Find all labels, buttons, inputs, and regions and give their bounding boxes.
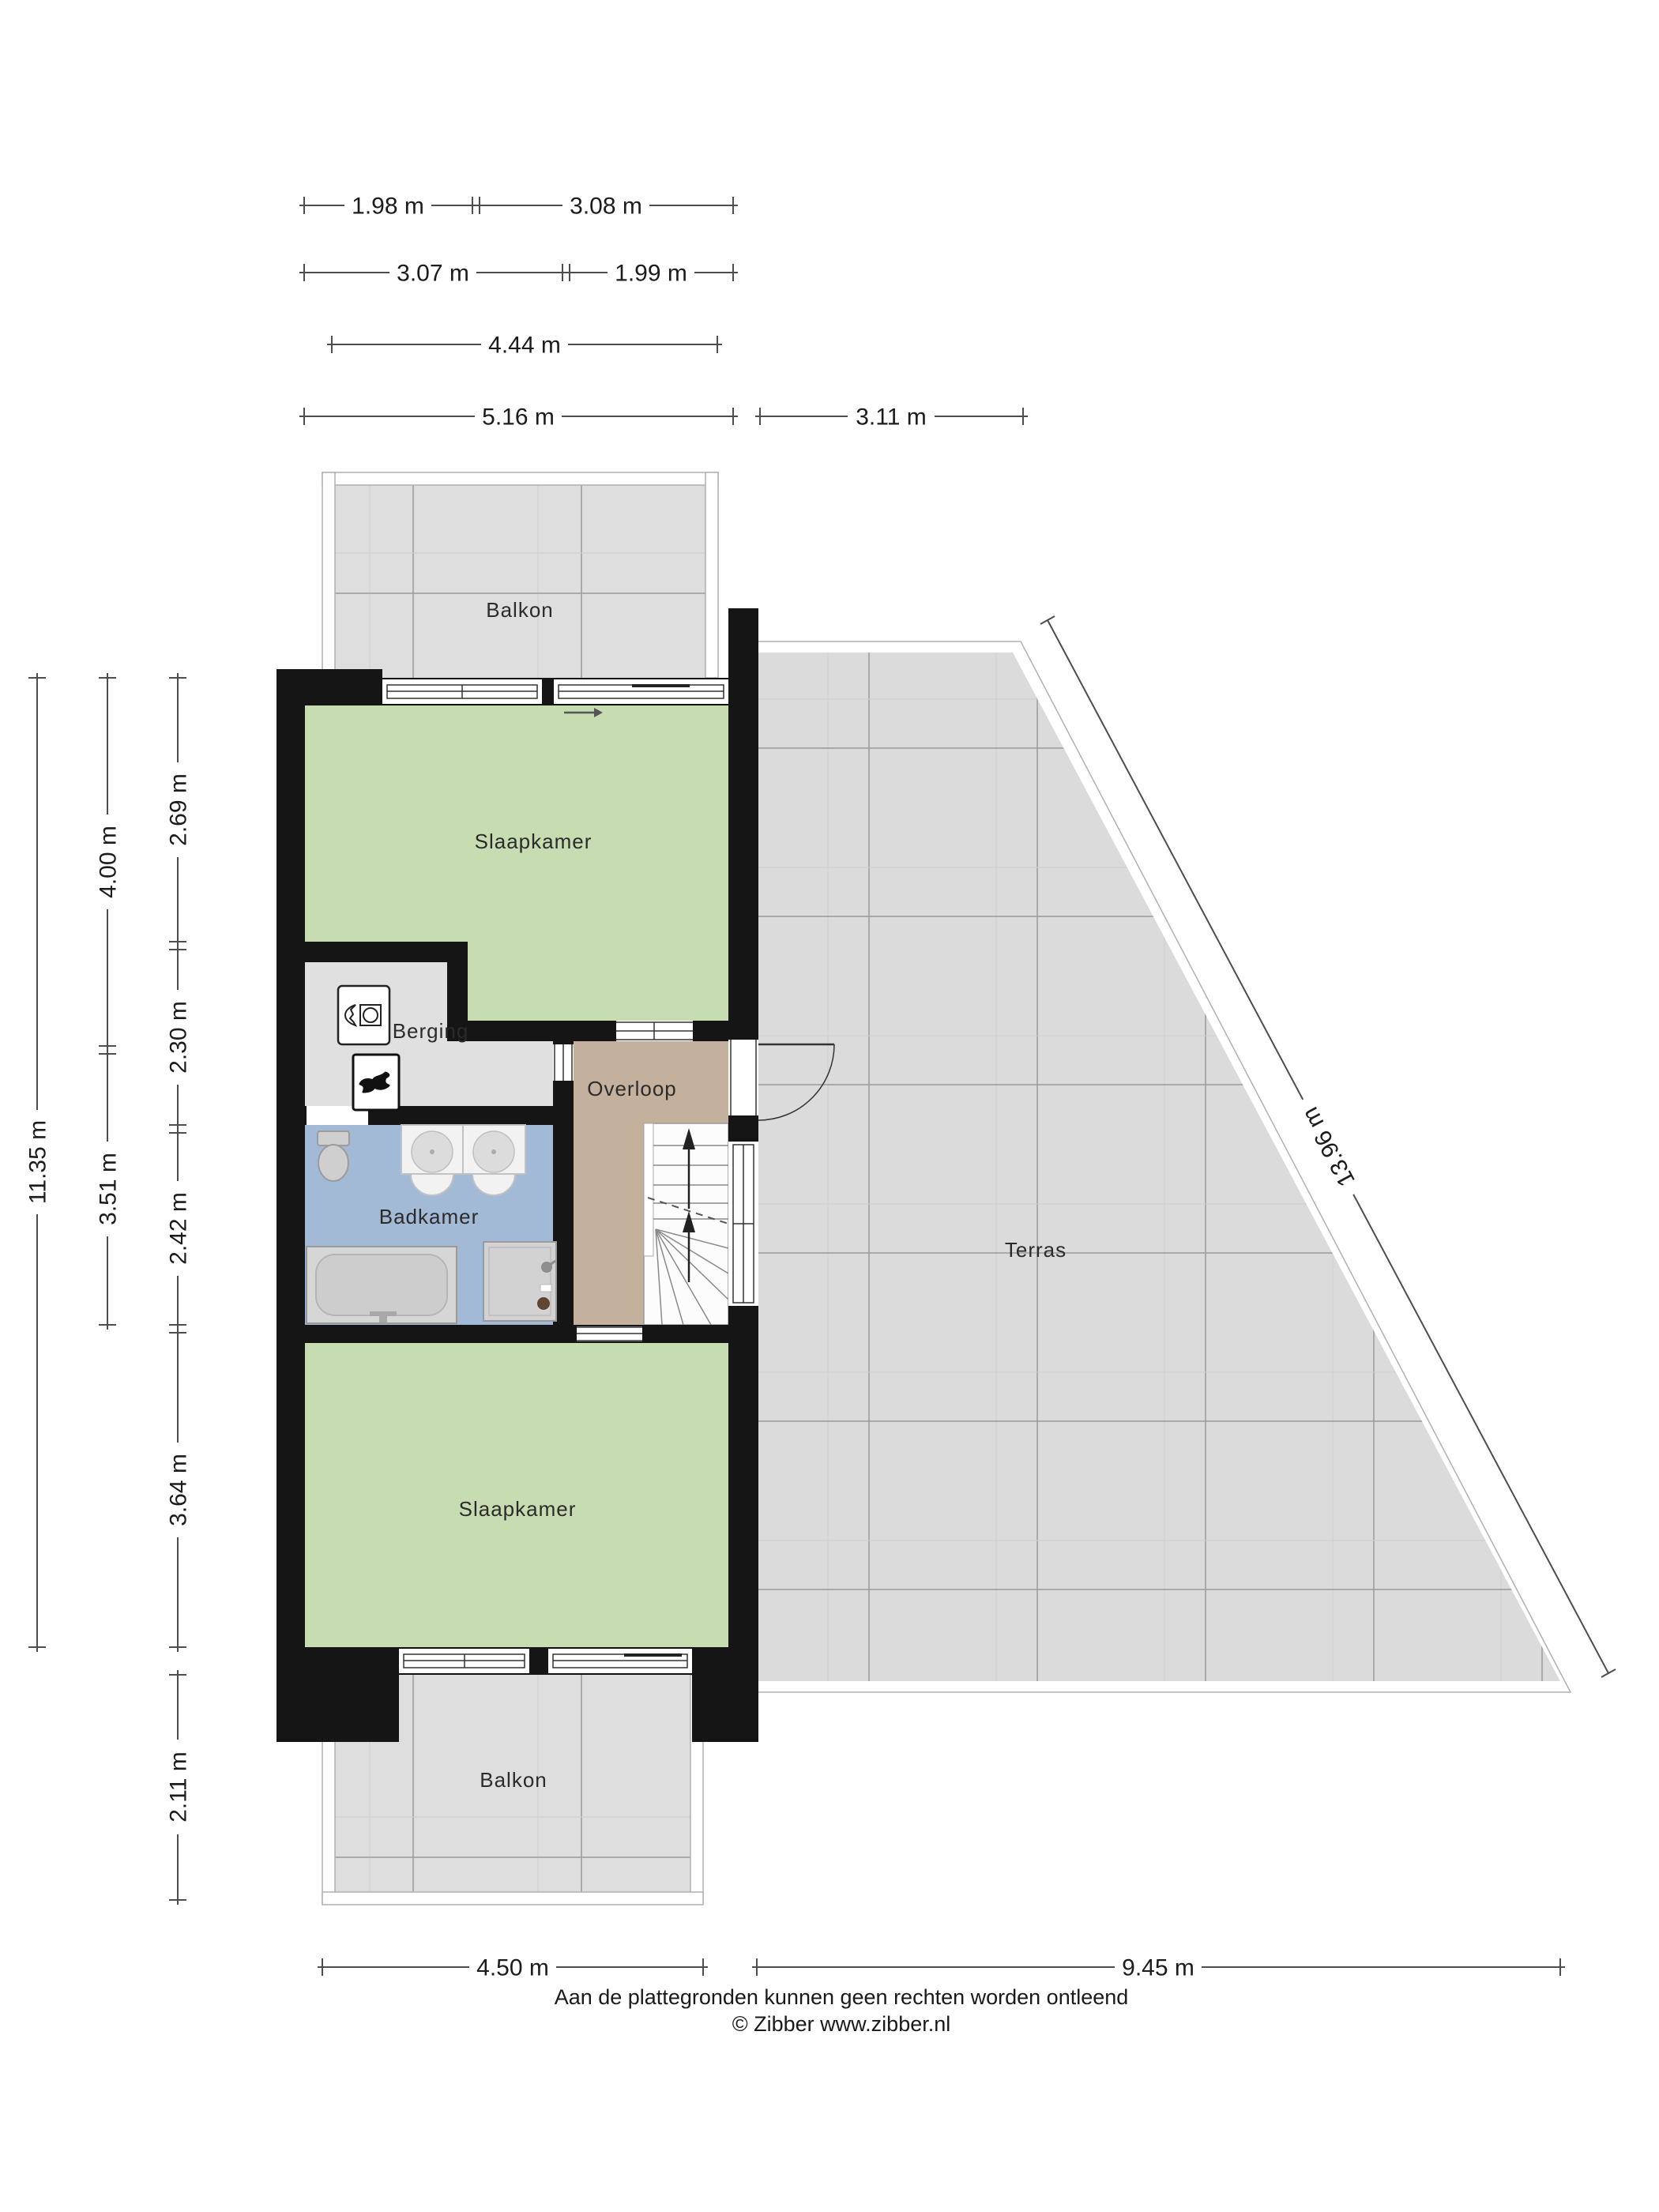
outer-wall-right-upper: [728, 608, 758, 1040]
dim-left-2-42: 2.42 m: [164, 1128, 192, 1330]
dim-top-3: 4.44 m: [327, 331, 722, 359]
svg-text:1.98 m: 1.98 m: [352, 194, 424, 220]
svg-text:4.44 m: 4.44 m: [488, 333, 561, 359]
svg-text:3.51 m: 3.51 m: [96, 1153, 122, 1225]
dim-top-2b: 1.99 m: [565, 259, 738, 287]
dim-top-1a: 1.98 m: [299, 192, 477, 220]
dimensions-bottom: 4.50 m 9.45 m: [318, 1954, 1565, 1981]
window-bedroom-top-1: [382, 678, 542, 705]
svg-text:4.00 m: 4.00 m: [96, 826, 122, 898]
svg-text:3.64 m: 3.64 m: [166, 1454, 192, 1526]
floorplan-canvas: Balkon Slaapkamer Berging Overloop Badka…: [0, 0, 1659, 2212]
dim-top-1b: 3.08 m: [475, 192, 738, 220]
dim-top-4b: 3.11 m: [755, 403, 1028, 431]
boiler-icon: [353, 1055, 399, 1110]
svg-text:2.30 m: 2.30 m: [166, 1001, 192, 1074]
wall-bathroom-bedroom: [305, 1325, 730, 1343]
staircase-stringer: [644, 1123, 653, 1256]
svg-text:3.11 m: 3.11 m: [856, 404, 927, 431]
outer-wall-top-left-stub: [276, 669, 382, 705]
svg-text:13.96 m: 13.96 m: [1297, 1103, 1360, 1191]
shower-icon: [483, 1242, 556, 1321]
outer-wall-top-pier: [542, 678, 554, 705]
outer-wall-bottom-pier: [529, 1647, 548, 1675]
outer-wall-left: [276, 669, 305, 1742]
window-landing-bedroom: [577, 1326, 642, 1341]
window-bedroom-bottom-1: [399, 1647, 529, 1675]
svg-text:3.07 m: 3.07 m: [397, 261, 469, 287]
dim-top-4a: 5.16 m: [299, 403, 738, 431]
dim-left-2-30: 2.30 m: [164, 945, 192, 1130]
dimensions-top: 1.98 m 3.08 m 3.07 m 1.99 m: [299, 192, 1028, 431]
room-label-balkon-top: Balkon: [486, 598, 554, 622]
svg-text:2.11 m: 2.11 m: [166, 1751, 192, 1823]
footer: Aan de plattegronden kunnen geen rechten…: [555, 1985, 1129, 2036]
window-stairs-terras: [728, 1142, 758, 1306]
terras-floor: [754, 653, 1560, 1681]
dim-top-2a: 3.07 m: [299, 259, 567, 287]
balcony-top-wall-left: [322, 472, 335, 678]
dim-left-11-35: 11.35 m: [24, 673, 51, 1652]
room-label-overloop: Overloop: [587, 1077, 677, 1100]
svg-text:5.16 m: 5.16 m: [482, 404, 555, 431]
dim-left-4-00: 4.00 m: [94, 673, 122, 1051]
door-opening-terras: [728, 1040, 758, 1115]
room-label-badkamer: Badkamer: [379, 1205, 480, 1228]
balcony-top-wall-top: [322, 472, 718, 485]
outer-wall-right-pier: [728, 1115, 758, 1142]
svg-text:3.08 m: 3.08 m: [570, 194, 642, 220]
svg-text:1.99 m: 1.99 m: [615, 261, 687, 287]
bathtub-icon: [307, 1247, 457, 1323]
dim-left-3-64: 3.64 m: [164, 1328, 192, 1652]
dim-left-3-51: 3.51 m: [94, 1049, 122, 1330]
room-label-balkon-bottom: Balkon: [480, 1768, 547, 1792]
window-bedroom-landing: [616, 1021, 693, 1041]
room-label-slaapkamer-bottom: Slaapkamer: [459, 1497, 577, 1521]
floorplan-page: Balkon Slaapkamer Berging Overloop Badka…: [0, 0, 1659, 2212]
svg-text:2.69 m: 2.69 m: [166, 773, 192, 846]
footer-disclaimer: Aan de plattegronden kunnen geen rechten…: [555, 1985, 1129, 2009]
dim-bottom-4-50: 4.50 m: [318, 1954, 708, 1981]
footer-copyright: © Zibber www.zibber.nl: [732, 2012, 951, 2036]
window-bedroom-bottom-2: [548, 1647, 692, 1675]
terras-area: [754, 641, 1604, 1692]
balcony-top-floor: [335, 485, 705, 678]
washing-machine-icon: [338, 986, 389, 1044]
dimensions-left: 11.35 m 4.00 m 3.51 m: [24, 673, 192, 1905]
dim-bottom-9-45: 9.45 m: [752, 1954, 1565, 1981]
outer-wall-bottom-left-stub: [276, 1647, 399, 1742]
dim-left-2-11: 2.11 m: [164, 1670, 192, 1905]
window-bedroom-top-2-sliding: [554, 678, 728, 705]
svg-text:2.42 m: 2.42 m: [166, 1192, 192, 1265]
svg-text:11.35 m: 11.35 m: [25, 1120, 51, 1204]
toilet-icon: [318, 1131, 349, 1181]
staircase: [644, 1123, 728, 1325]
balcony-bottom-wall-bottom: [322, 1892, 703, 1905]
balcony-top: [322, 472, 718, 678]
svg-text:9.45 m: 9.45 m: [1122, 1955, 1194, 1981]
bedroom-bottom-floor: [305, 1343, 730, 1647]
room-label-slaapkamer-top: Slaapkamer: [475, 829, 592, 853]
balcony-top-wall-right: [705, 472, 718, 678]
outer-wall-bottom-right-stub: [692, 1647, 758, 1742]
window-storage-landing: [553, 1044, 574, 1081]
room-label-terras: Terras: [1005, 1238, 1066, 1262]
svg-text:4.50 m: 4.50 m: [476, 1955, 549, 1981]
dim-left-2-69: 2.69 m: [164, 673, 192, 946]
wall-bedroom-storage: [305, 942, 447, 962]
room-label-berging: Berging: [393, 1019, 469, 1043]
